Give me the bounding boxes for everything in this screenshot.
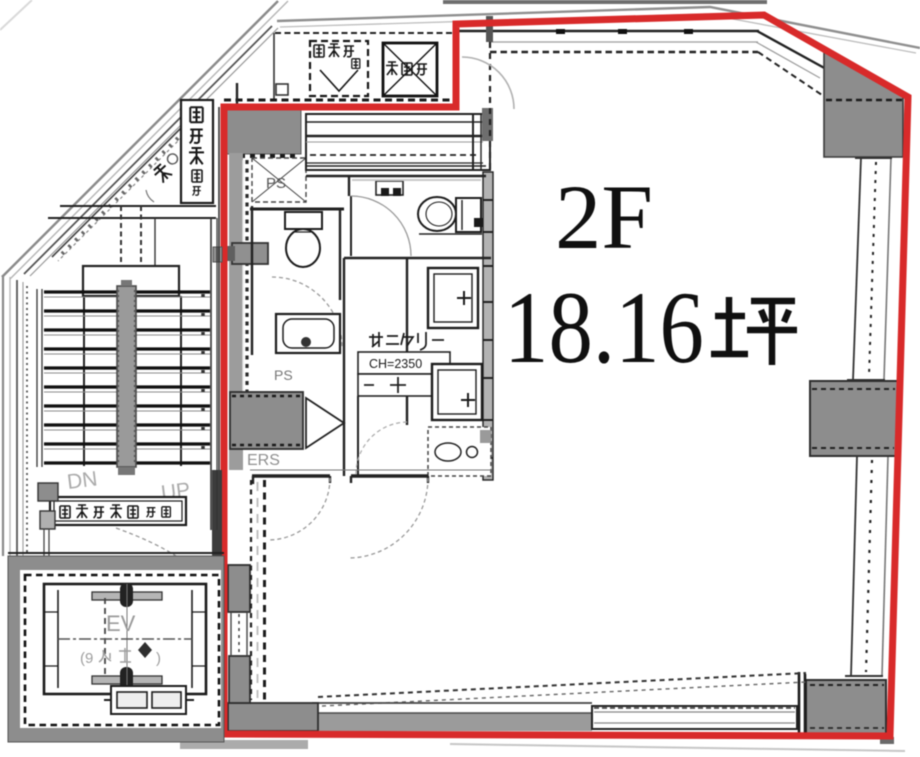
- svg-text:PS: PS: [266, 175, 286, 192]
- svg-text:18.16: 18.16: [504, 271, 704, 385]
- svg-text:): ): [156, 650, 161, 667]
- svg-text:PS: PS: [274, 367, 293, 383]
- svg-text:DN: DN: [66, 467, 99, 494]
- svg-text:ERS: ERS: [247, 452, 280, 469]
- svg-text:EV: EV: [106, 611, 136, 636]
- svg-text:CH=2350: CH=2350: [369, 357, 422, 371]
- svg-text:(9: (9: [80, 650, 93, 667]
- svg-text:2F: 2F: [555, 166, 653, 268]
